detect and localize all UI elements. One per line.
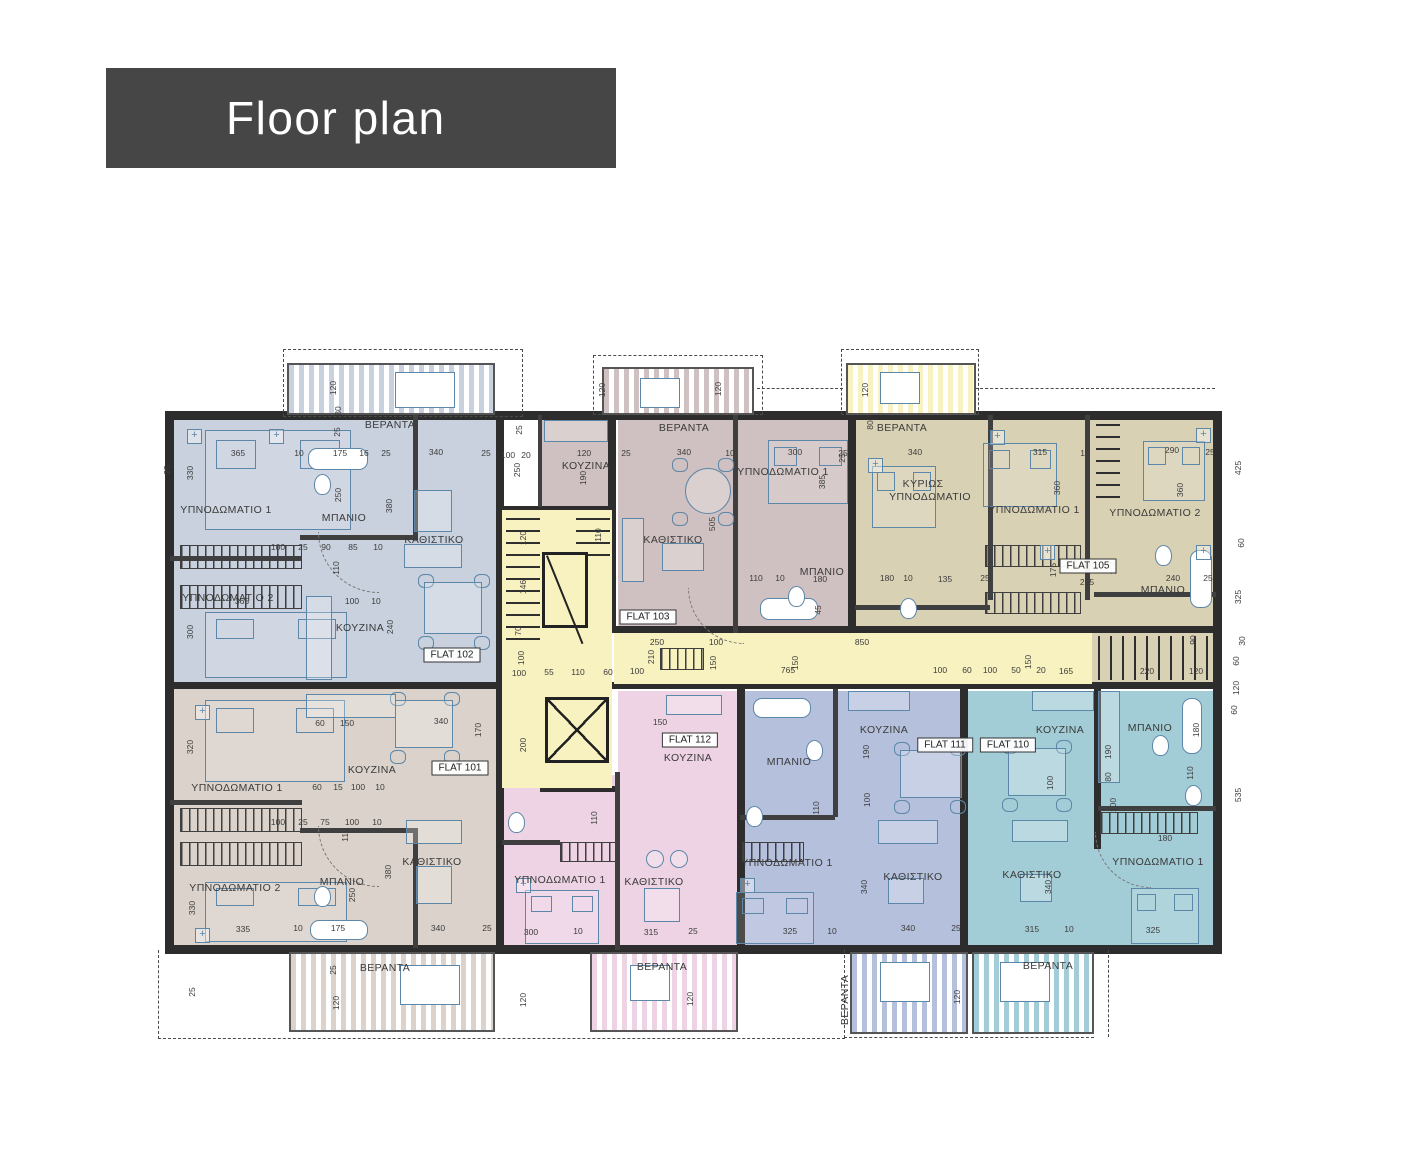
dashed-line-top-a — [757, 388, 843, 389]
room-label-bedroom1-f102: ΥΠΝΟΔΩΜΑΤΙΟ 1 — [180, 504, 271, 516]
dim: 240 — [385, 620, 395, 634]
chair — [894, 800, 910, 814]
dashed-line-top-b — [975, 388, 1215, 389]
room-label-veranda-f102: ΒΕΡΑΝΤΑ — [365, 419, 415, 431]
dim: 300 — [185, 625, 195, 639]
plus-marker: + — [740, 878, 755, 893]
room-label-kitchen-f102: ΚΟΥΖΙΝΑ — [336, 622, 384, 634]
dim: 315 — [1033, 447, 1047, 457]
dim: 30 — [1237, 636, 1247, 645]
dim: 340 — [429, 447, 443, 457]
chair — [718, 458, 734, 472]
dim: 335 — [236, 924, 250, 934]
dim: 120 — [1189, 666, 1203, 676]
dim: 180 — [880, 573, 894, 583]
room-label-veranda-f112: ΒΕΡΑΝΤΑ — [637, 961, 687, 973]
dim: 110 — [1185, 766, 1195, 780]
dim: 340 — [434, 716, 448, 726]
toilet-flat112 — [508, 812, 525, 833]
room-label-kitchen-f110: ΚΟΥΖΙΝΑ — [1036, 724, 1084, 736]
dim: 100 — [1108, 798, 1118, 812]
bathtub-flat111 — [753, 698, 811, 718]
room-label-living-f112: ΚΑΘΙΣΤΙΚΟ — [624, 876, 683, 888]
dim: 535 — [1233, 788, 1243, 802]
sofa-flat101 — [406, 820, 462, 844]
wardrobe-flat101-b — [180, 842, 302, 866]
plus-marker: + — [990, 430, 1005, 445]
partition-f105-bath — [855, 605, 990, 610]
dim: 120 — [518, 531, 528, 545]
dim: 110 — [593, 528, 603, 542]
dim: 100 — [709, 637, 723, 647]
elevator — [545, 697, 609, 763]
dim: 75 — [320, 817, 329, 827]
kitchen-counter-flat103 — [544, 420, 608, 442]
dim: 60 — [603, 667, 612, 677]
dim: 100 — [516, 651, 526, 665]
dim: 250 — [333, 488, 343, 502]
dim: 25 — [187, 987, 197, 996]
dim: 15 — [333, 782, 342, 792]
dim: 10 — [775, 573, 784, 583]
armchair-flat112-a — [646, 850, 664, 868]
toilet-flat105-a — [900, 598, 917, 619]
room-label-kitchen-f103: ΚΟΥΖΙΝΑ — [562, 460, 610, 472]
room-label-living-f110: ΚΑΘΙΣΤΙΚΟ — [1002, 869, 1061, 881]
dim: 120 — [328, 381, 338, 395]
dim: 45 — [813, 605, 823, 614]
dim: 330 — [185, 466, 195, 480]
bed-flat110 — [1131, 888, 1199, 944]
dim: 380 — [384, 499, 394, 513]
wardrobe-flat103 — [660, 648, 704, 670]
plus-marker: + — [1040, 545, 1055, 560]
dim: 135 — [938, 574, 952, 584]
dim: 100 — [983, 665, 997, 675]
plus-marker: + — [868, 458, 883, 473]
dim: 100 — [271, 542, 285, 552]
kitchen-counter-flat112 — [666, 695, 722, 715]
flat-101-label: FLAT 101 — [432, 761, 489, 776]
dim: 25 — [481, 448, 490, 458]
dim: 250 — [650, 637, 664, 647]
dim: 765 — [781, 665, 795, 675]
dim: 10 — [373, 542, 382, 552]
dim: 210 — [646, 650, 656, 664]
dim: 120 — [331, 996, 341, 1010]
dim: 120 — [685, 992, 695, 1006]
dim: 120 — [860, 383, 870, 397]
dim: 10 — [903, 573, 912, 583]
room-label-bath-f110: ΜΠΑΝΙΟ — [1128, 722, 1172, 734]
room-label-master1-f105: ΚΥΡΙΩΣ — [903, 478, 944, 490]
room-label-living-f101: ΚΑΘΙΣΤΙΚΟ — [402, 856, 461, 868]
dim: 25 — [514, 425, 524, 434]
dim: 120 — [518, 993, 528, 1007]
kitchen-counter-flat101 — [306, 694, 396, 718]
chair — [672, 458, 688, 472]
kitchen-counter-flat110-right — [1098, 691, 1120, 783]
dim: 55 — [544, 667, 553, 677]
flat-111-label: FLAT 111 — [917, 738, 973, 753]
kitchen-counter-flat111 — [848, 691, 910, 711]
coffee-table-flat101 — [416, 866, 452, 904]
room-label-bedroom2-f105: ΥΠΝΟΔΩΜΑΤΙΟ 2 — [1109, 507, 1200, 519]
dim: 380 — [383, 865, 393, 879]
flat-110-label: FLAT 110 — [980, 738, 1036, 753]
dim: 175 — [1048, 563, 1058, 577]
room-label-kitchen-f112: ΚΟΥΖΙΝΑ — [664, 752, 712, 764]
dim: 175 — [331, 923, 345, 933]
dim: 325 — [1233, 590, 1243, 604]
dim: 165 — [1059, 666, 1073, 676]
toilet-flat110-a — [1152, 735, 1169, 756]
dim: 110 — [571, 667, 585, 677]
dim: 60 — [1231, 656, 1241, 665]
dim: 25 — [298, 817, 307, 827]
sofa-flat102 — [404, 544, 462, 568]
dim: 315 — [1025, 924, 1039, 934]
dim: 250 — [347, 888, 357, 902]
chair — [1056, 798, 1072, 812]
dim: 50 — [1011, 665, 1020, 675]
plus-marker: + — [1196, 428, 1211, 443]
chair — [390, 750, 406, 764]
dim: 120 — [577, 448, 591, 458]
room-label-bedroom2-f101: ΥΠΝΟΔΩΜΑΤΙΟ 2 — [189, 882, 280, 894]
toilet-flat110-b — [1185, 785, 1202, 806]
dim: 150 — [340, 718, 354, 728]
dim: 10 — [1080, 448, 1089, 458]
dim: 110 — [331, 561, 341, 575]
dim: 70 — [513, 626, 523, 635]
dim: 170 — [473, 723, 483, 737]
dim: 340 — [1043, 880, 1053, 894]
wall-f111-f110 — [960, 689, 968, 952]
dim: 100 — [271, 817, 285, 827]
dashed-outline-bottom-left — [158, 950, 845, 1039]
sofa-flat110 — [1012, 820, 1068, 842]
dim: 25 — [621, 448, 630, 458]
dim: 120 — [1231, 681, 1241, 695]
room-label-bedroom1-f110: ΥΠΝΟΔΩΜΑΤΙΟ 1 — [1112, 856, 1203, 868]
dim: 340 — [431, 923, 445, 933]
wall-corridor-top — [610, 626, 1222, 633]
dim: 10 — [372, 817, 381, 827]
dim: 100 — [512, 668, 526, 678]
dim: 180 — [1158, 833, 1172, 843]
room-label-veranda-f103: ΒΕΡΑΝΤΑ — [659, 422, 709, 434]
flat-105-label: FLAT 105 — [1060, 559, 1117, 574]
partition-f103-kitchen — [538, 415, 542, 507]
toilet-flat102 — [314, 474, 331, 495]
dashed-line-bottom-b — [844, 1037, 1094, 1038]
flat-112-label: FLAT 112 — [662, 733, 718, 748]
room-label-kitchen-f111: ΚΟΥΖΙΝΑ — [860, 724, 908, 736]
plus-marker: + — [195, 705, 210, 720]
dim: 110 — [749, 573, 763, 583]
dim: 505 — [707, 517, 717, 531]
partition-f101-beds — [170, 800, 302, 805]
dim: 25 — [328, 965, 338, 974]
toilet-flat105-b — [1155, 545, 1172, 566]
dim: 90 — [1188, 635, 1198, 644]
dim: 100 — [630, 666, 644, 676]
room-label-bedroom1-f105: ΥΠΝΟΔΩΜΑΤΙΟ 1 — [988, 504, 1079, 516]
room-label-bath-f101: ΜΠΑΝΙΟ — [320, 876, 364, 888]
dining-table-flat111 — [900, 750, 962, 798]
plus-marker: + — [195, 928, 210, 943]
dim: 10 — [827, 926, 836, 936]
dim: 190 — [861, 745, 871, 759]
dim: 60 — [1229, 705, 1239, 714]
partition-f111-bath-v — [833, 689, 838, 817]
plus-marker: + — [1196, 545, 1211, 560]
dim: 220 — [1140, 666, 1154, 676]
wardrobe-flat105-b — [985, 592, 1081, 614]
partition-f112-bath — [502, 840, 560, 845]
room-label-living-f103: ΚΑΘΙΣΤΙΚΟ — [643, 534, 702, 546]
dim: 340 — [908, 447, 922, 457]
room-label-veranda-f105: ΒΕΡΑΝΤΑ — [877, 422, 927, 434]
coffee-table-flat102 — [414, 490, 452, 532]
chair — [718, 512, 734, 526]
dim: 360 — [1052, 481, 1062, 495]
dim: 100 — [862, 793, 872, 807]
room-label-bedroom1-f112: ΥΠΝΟΔΩΜΑΤΙΟ 1 — [514, 874, 605, 886]
dim: 110 — [340, 828, 350, 842]
dining-table-flat103 — [685, 468, 731, 514]
dim: 10 — [371, 596, 380, 606]
dim: 100 — [1045, 776, 1055, 790]
dim: 180 — [1191, 723, 1201, 737]
dim: 10 — [294, 448, 303, 458]
dim: 60 — [962, 665, 971, 675]
veranda-furniture-103 — [640, 378, 680, 408]
dim: 240 — [1166, 573, 1180, 583]
toilet-flat103 — [788, 586, 805, 607]
dim: 200 — [518, 738, 528, 752]
dashed-line-bottom-c — [1108, 950, 1109, 1037]
dim: 850 — [855, 637, 869, 647]
dim: 25 — [162, 465, 172, 474]
chair — [672, 512, 688, 526]
dining-table-flat110 — [1008, 748, 1066, 796]
dining-table-flat102 — [424, 582, 482, 634]
dim: 150 — [1023, 655, 1033, 669]
dim: 10 — [725, 448, 734, 458]
dim: 290 — [1165, 445, 1179, 455]
dim: 330 — [187, 901, 197, 915]
dim: 110 — [589, 811, 599, 825]
dim: 85 — [348, 542, 357, 552]
floor-plan: + .plus{left:187px;top:429px;} + + + + +… — [0, 0, 1418, 1166]
dim: 100 — [345, 596, 359, 606]
dim: 340 — [901, 923, 915, 933]
room-label-veranda-f110: ΒΕΡΑΝΤΑ — [1023, 960, 1073, 972]
dim: 80 — [1103, 772, 1113, 781]
dim: 25 — [332, 427, 342, 436]
flat-102-label: FLAT 102 — [424, 648, 481, 663]
room-label-kitchen-f101: ΚΟΥΖΙΝΑ — [348, 764, 396, 776]
room-label-bedroom1-f111: ΥΠΝΟΔΩΜΑΤΙΟ 1 — [741, 857, 832, 869]
dim: 325 — [783, 926, 797, 936]
armchair-flat112-b — [670, 850, 688, 868]
dim: 90 — [321, 542, 330, 552]
room-label-bedroom2-f102: ΥΠΝΟΔΩΜΑΤΙΟ 2 — [182, 592, 273, 604]
flat-103-label: FLAT 103 — [620, 610, 677, 625]
room-label-bath-f111: ΜΠΑΝΙΟ — [767, 756, 811, 768]
room-label-veranda-f111: ΒΕΡΑΝΤΑ — [839, 975, 851, 1025]
dim: 175 — [333, 448, 347, 458]
room-label-bath-f102: ΜΠΑΝΙΟ — [322, 512, 366, 524]
dim: 300 — [524, 927, 538, 937]
dim: 320 — [185, 740, 195, 754]
room-label-bedroom1-f101: ΥΠΝΟΔΩΜΑΤΙΟ 1 — [191, 782, 282, 794]
dim: 190 — [578, 471, 588, 485]
chair — [1002, 798, 1018, 812]
dim: 60 — [1236, 538, 1246, 547]
dim: 60 — [312, 782, 321, 792]
dim: 120 — [952, 990, 962, 1004]
coffee-table-flat112 — [644, 888, 680, 922]
dim: 120 — [597, 383, 607, 397]
room-label-living-f111: ΚΑΘΙΣΤΙΚΟ — [883, 871, 942, 883]
dim: 80 — [333, 406, 343, 415]
dim: 25 — [482, 923, 491, 933]
coffee-table-flat103 — [662, 543, 704, 571]
sofa-flat111 — [878, 820, 938, 844]
dim: 150 — [708, 656, 718, 670]
dim: 365 — [231, 448, 245, 458]
dim: 100 — [501, 450, 515, 460]
dim: 425 — [1233, 461, 1243, 475]
dim: 60 — [315, 718, 324, 728]
kitchen-counter-flat110 — [1032, 691, 1094, 711]
veranda-furniture-102 — [395, 372, 455, 408]
dim: 20 — [1036, 665, 1045, 675]
dim: 10 — [375, 782, 384, 792]
dim: 325 — [1146, 925, 1160, 935]
wall-mid-left — [165, 682, 505, 689]
dim: 315 — [644, 927, 658, 937]
dim: 100 — [345, 817, 359, 827]
dim: 25 — [298, 542, 307, 552]
dim: 100 — [351, 782, 365, 792]
chair — [950, 800, 966, 814]
dim: 120 — [713, 382, 723, 396]
dim: 300 — [788, 447, 802, 457]
wall-f103-f105 — [848, 411, 856, 633]
room-label-bath-f103: ΜΠΑΝΙΟ — [800, 566, 844, 578]
kitchen-counter-flat102 — [306, 596, 332, 680]
room-label-veranda-f101: ΒΕΡΑΝΤΑ — [360, 962, 410, 974]
dim: 25 — [951, 923, 960, 933]
dim: 25 — [980, 573, 989, 583]
toilet-flat101 — [314, 886, 331, 907]
plus-marker: + — [269, 429, 284, 444]
room-label-living-f102: ΚΑΘΙΣΤΙΚΟ — [404, 534, 463, 546]
dim: 100 — [933, 665, 947, 675]
dim: 25 — [381, 448, 390, 458]
stairs-top-right — [1096, 424, 1120, 508]
dim: 255 — [1080, 577, 1094, 587]
veranda-flat102 — [287, 363, 495, 415]
veranda-furniture-111 — [880, 962, 930, 1002]
dim: 25 — [1205, 447, 1214, 457]
dim: 16 — [359, 448, 368, 458]
bed-flat111 — [736, 892, 814, 944]
dim: 360 — [1175, 483, 1185, 497]
dim: 25 — [837, 453, 847, 462]
room-label-bedroom1-f103: ΥΠΝΟΔΩΜΑΤΙΟ 1 — [737, 466, 828, 478]
room-label-master2-f105: ΥΠΝΟΔΩΜΑΤΙΟ — [889, 491, 971, 503]
dim: 150 — [653, 717, 667, 727]
dim: 340 — [677, 447, 691, 457]
dim: 25 — [688, 926, 697, 936]
dim: 250 — [512, 463, 522, 477]
dim: 10 — [293, 923, 302, 933]
dim: 146 — [518, 580, 528, 594]
dim: 190 — [1103, 745, 1113, 759]
dim: 80 — [865, 420, 875, 429]
wardrobe-flat110 — [1100, 812, 1198, 834]
room-label-bath-f105: ΜΠΑΝΙΟ — [1141, 584, 1185, 596]
dim: 10 — [573, 926, 582, 936]
veranda-furniture-105 — [880, 372, 920, 404]
sofa-flat103 — [622, 518, 644, 582]
toilet-flat111-b — [746, 806, 763, 827]
plus-marker: + — [187, 429, 202, 444]
dim: 340 — [859, 880, 869, 894]
wardrobe-flat112 — [560, 842, 616, 862]
dim: 10 — [1064, 924, 1073, 934]
dim: 110 — [811, 801, 821, 815]
dim: 20 — [521, 450, 530, 460]
dim: 25 — [1203, 573, 1212, 583]
